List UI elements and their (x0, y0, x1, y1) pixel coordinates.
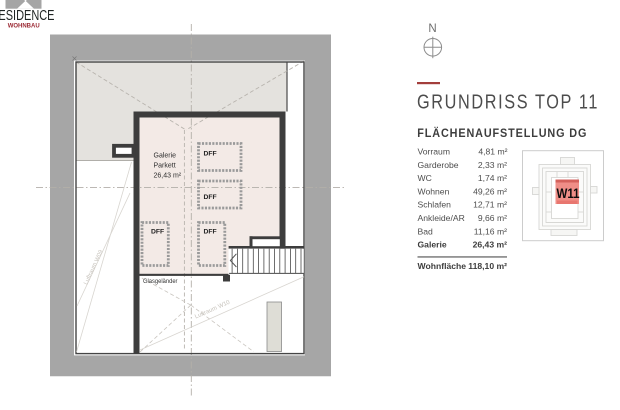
svg-text:Glasgeländer: Glasgeländer (143, 278, 178, 285)
svg-text:12,71 m²: 12,71 m² (473, 200, 507, 210)
svg-text:W11: W11 (557, 185, 580, 201)
svg-text:2,33 m²: 2,33 m² (478, 160, 507, 170)
svg-text:26,43 m²: 26,43 m² (154, 173, 182, 180)
svg-text:4,81 m²: 4,81 m² (478, 147, 507, 157)
svg-text:Schlafen: Schlafen (418, 200, 452, 210)
svg-text:Bad: Bad (418, 226, 434, 236)
svg-text:Wohnfläche: Wohnfläche (418, 261, 467, 271)
svg-text:Galerie: Galerie (154, 153, 177, 160)
svg-text:GRUNDRISS TOP 11: GRUNDRISS TOP 11 (417, 92, 599, 114)
svg-text:FLÄCHENAUFSTELLUNG DG: FLÄCHENAUFSTELLUNG DG (417, 125, 587, 140)
svg-text:WOHNBAU: WOHNBAU (8, 24, 40, 30)
svg-text:DFF: DFF (204, 194, 217, 201)
svg-text:Galerie: Galerie (418, 240, 447, 250)
svg-text:9,66 m²: 9,66 m² (478, 213, 507, 223)
svg-text:DFF: DFF (204, 229, 217, 236)
svg-text:DFF: DFF (151, 229, 164, 236)
svg-text:Parkett: Parkett (154, 163, 176, 170)
svg-text:1,74 m²: 1,74 m² (478, 173, 507, 183)
svg-text:Vorraum: Vorraum (418, 147, 450, 157)
svg-text:49,26 m²: 49,26 m² (473, 186, 507, 196)
svg-text:11,16 m²: 11,16 m² (474, 226, 507, 236)
svg-text:DFF: DFF (204, 151, 217, 158)
svg-text:Wohnen: Wohnen (418, 186, 450, 196)
svg-text:118,10 m²: 118,10 m² (468, 261, 507, 271)
svg-text:Garderobe: Garderobe (418, 160, 459, 170)
svg-text:RESIDENCE: RESIDENCE (0, 8, 55, 24)
svg-text:N: N (428, 23, 436, 35)
svg-text:WC: WC (418, 173, 432, 183)
svg-text:Ankleide/AR: Ankleide/AR (418, 213, 465, 223)
svg-text:26,43 m²: 26,43 m² (473, 240, 508, 250)
